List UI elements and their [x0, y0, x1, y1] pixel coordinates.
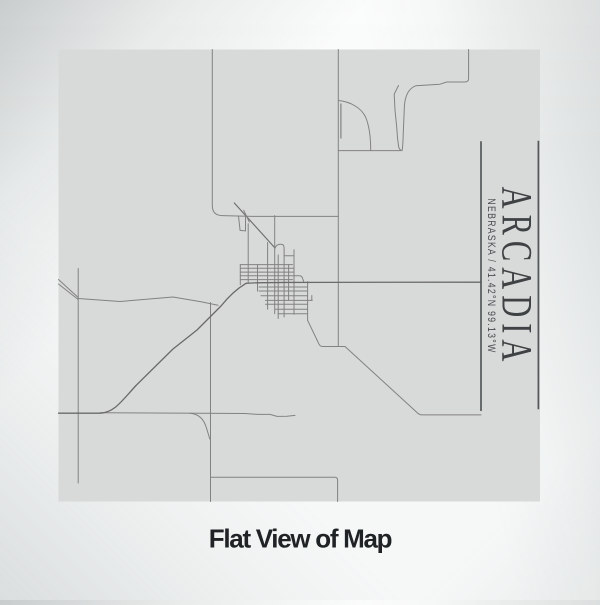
svg-text:NEBRASKA / 41.42°N 99.13°W: NEBRASKA / 41.42°N 99.13°W [485, 198, 497, 353]
svg-text:Flat View of Map: Flat View of Map [209, 524, 392, 554]
svg-text:ARCADIA: ARCADIA [492, 187, 539, 368]
